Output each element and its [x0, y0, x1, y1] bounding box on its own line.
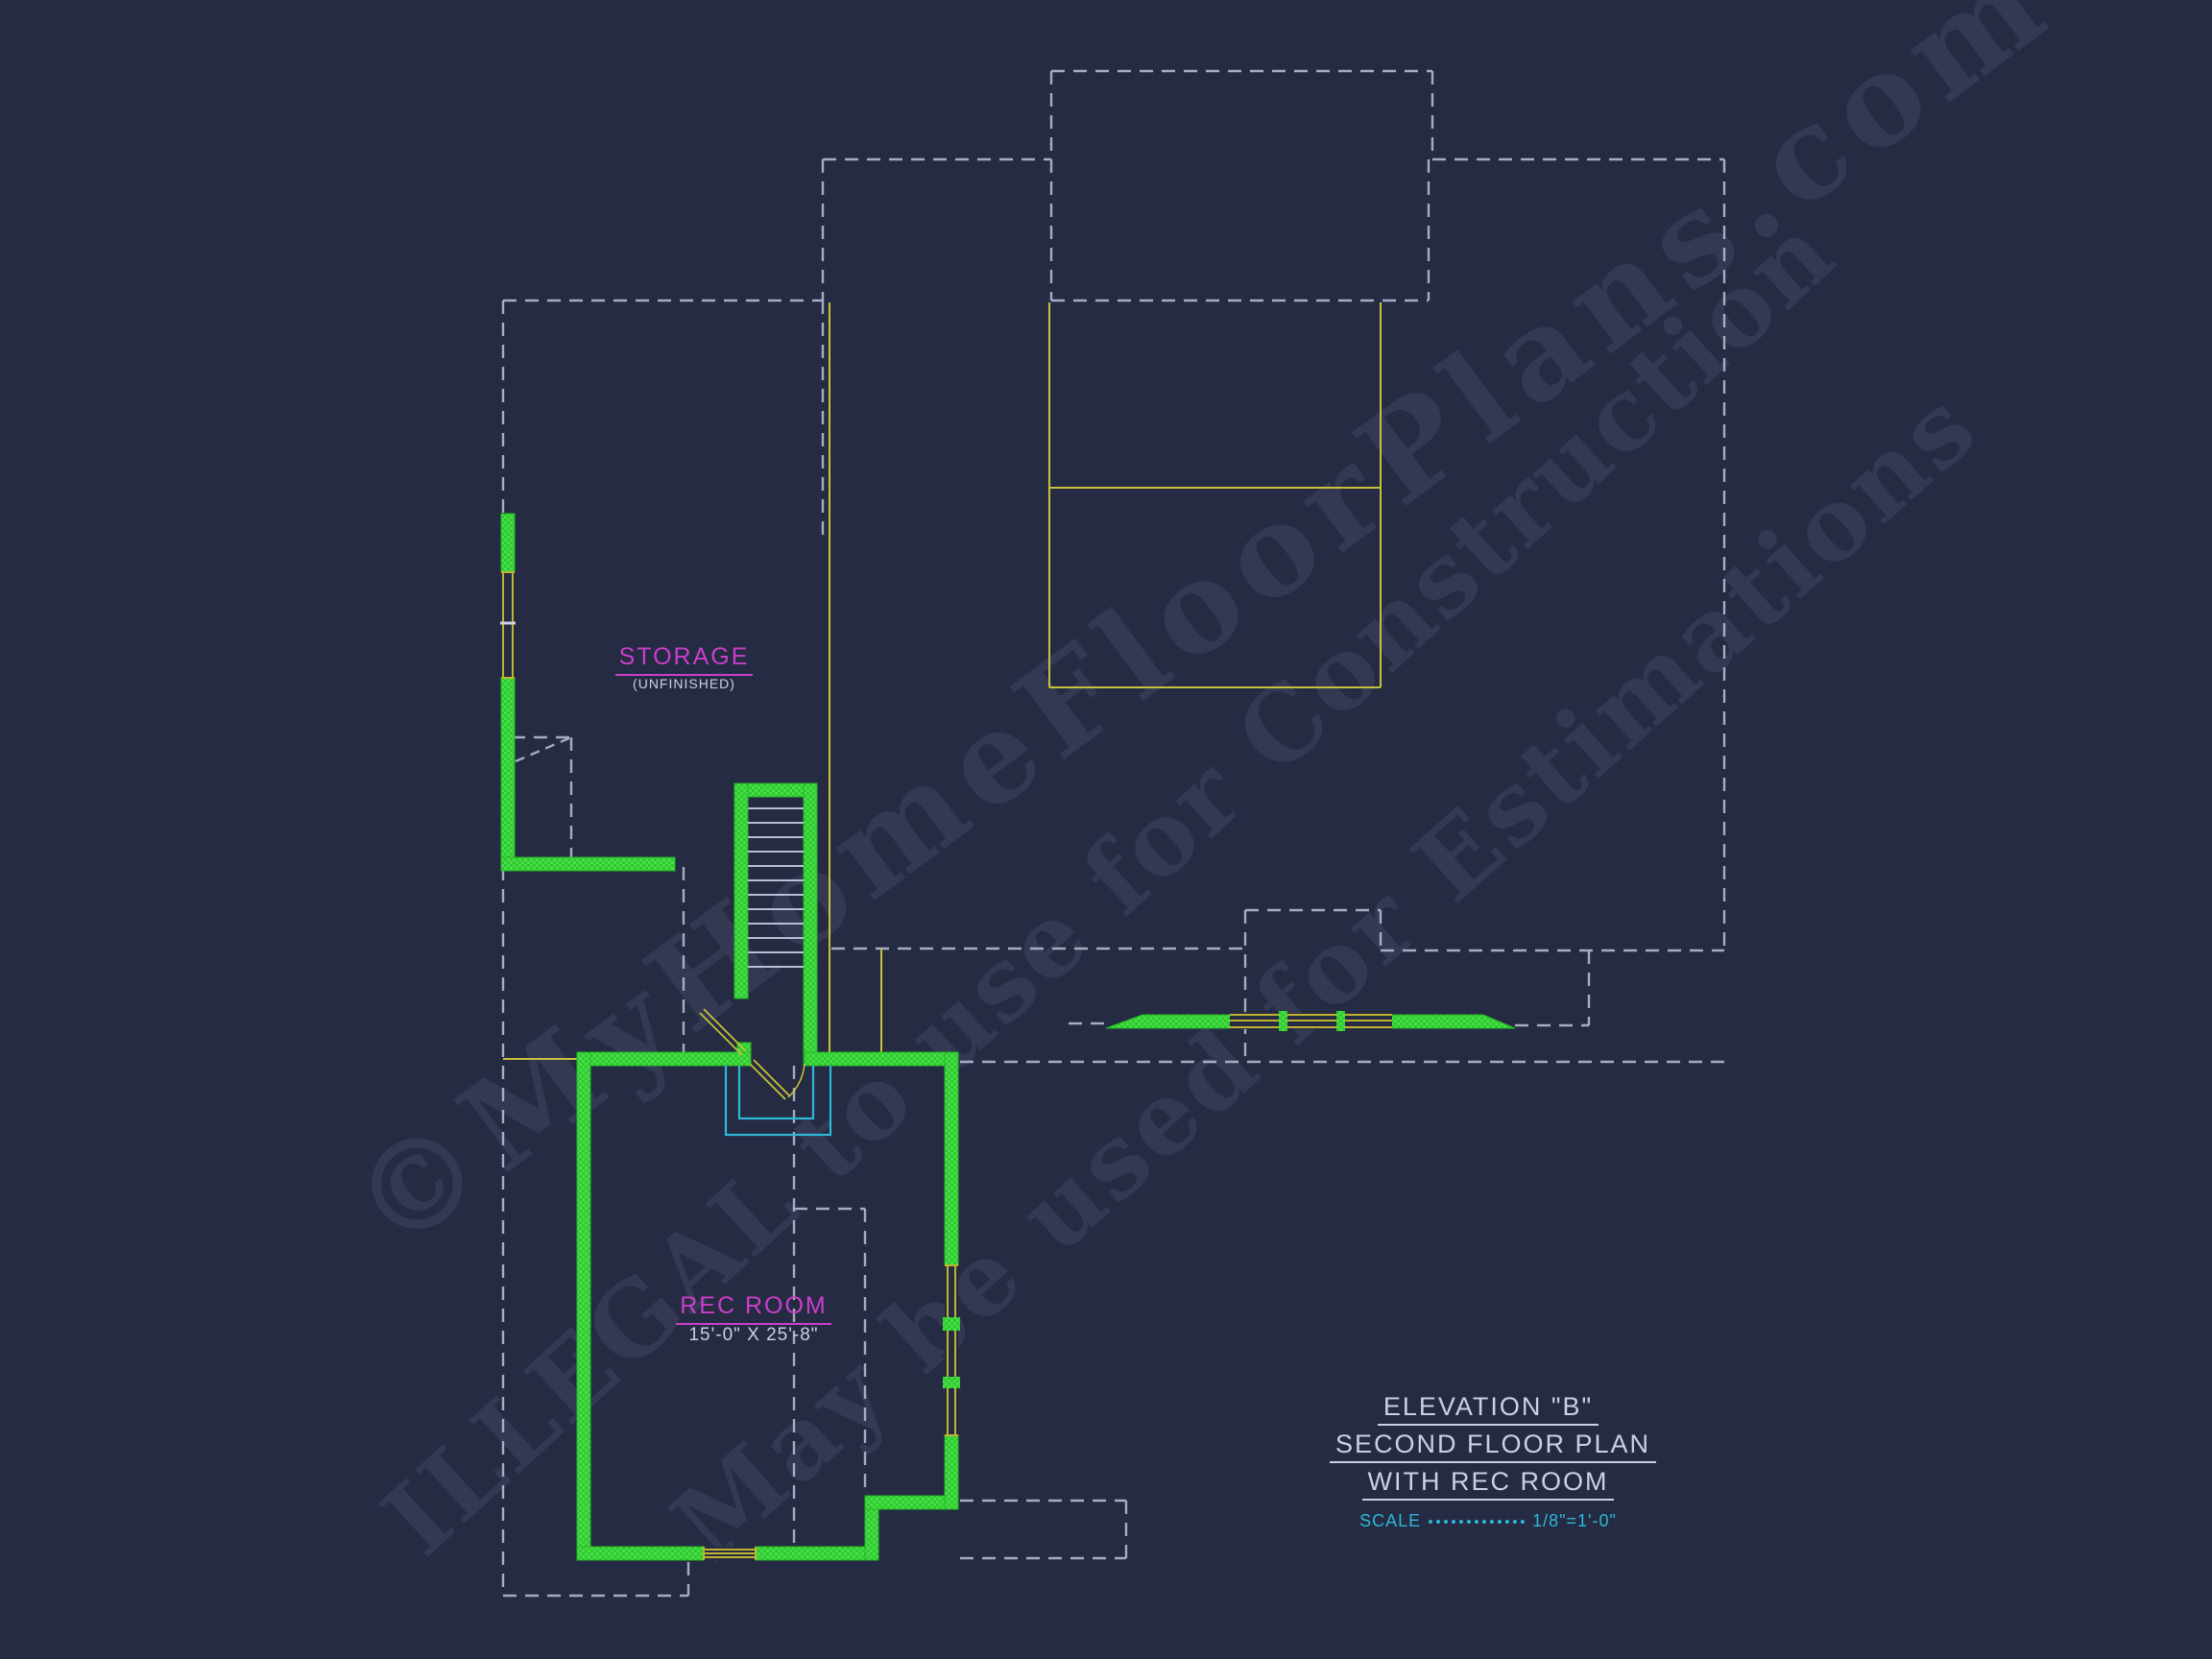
- scale-divider-dots: [1429, 1520, 1525, 1524]
- storage-room-label: STORAGE (UNFINISHED): [605, 643, 763, 693]
- storage-room-title: STORAGE: [615, 643, 754, 676]
- scale-row: SCALE 1/8"=1'-0": [1330, 1511, 1647, 1531]
- rec-room-label: REC ROOM 15'-0" X 25'-8": [667, 1292, 840, 1346]
- rec-room-title: REC ROOM: [676, 1292, 831, 1325]
- floor-plan-drawing: [0, 0, 2212, 1659]
- plan-title: SECOND FLOOR PLAN: [1330, 1430, 1656, 1463]
- stair-opening-cyan-group: [726, 1066, 830, 1135]
- elevation-title: ELEVATION "B": [1378, 1392, 1599, 1426]
- scale-label: SCALE: [1359, 1511, 1421, 1531]
- deck-railing-group: [1106, 1011, 1515, 1031]
- plan-canvas: ©MyHomeFloorPlans.com ILLEGAL to use for…: [0, 0, 2212, 1659]
- storage-room-subtitle: (UNFINISHED): [633, 676, 735, 691]
- plan-subtitle: WITH REC ROOM: [1362, 1467, 1615, 1501]
- roofline-dashed-outline-group: [503, 71, 1724, 1596]
- scale-value: 1/8"=1'-0": [1532, 1511, 1617, 1531]
- title-block: ELEVATION "B" SECOND FLOOR PLAN WITH REC…: [1330, 1392, 1647, 1531]
- stair-treads-group: [748, 808, 804, 967]
- rec-room-dimensions: 15'-0" X 25'-8": [688, 1325, 818, 1345]
